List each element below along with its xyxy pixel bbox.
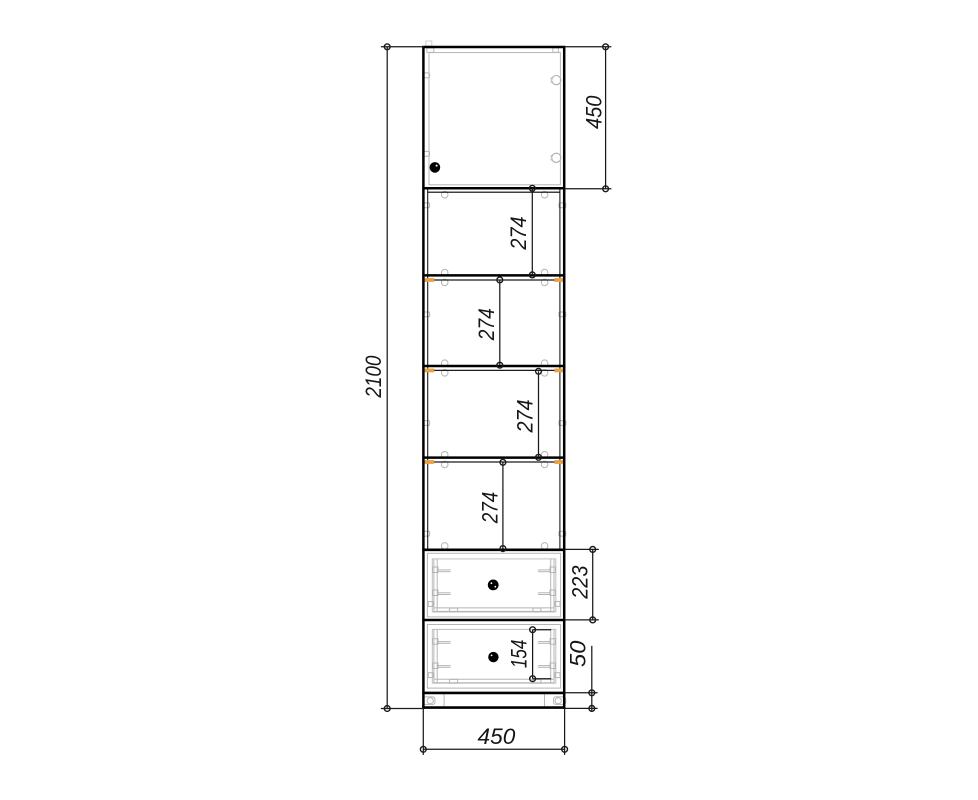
svg-text:450: 450: [582, 95, 607, 129]
svg-text:450: 450: [478, 724, 517, 749]
svg-text:154: 154: [506, 640, 531, 669]
svg-text:2100: 2100: [361, 355, 386, 399]
svg-text:223: 223: [568, 565, 593, 600]
svg-text:274: 274: [474, 308, 499, 341]
svg-text:50: 50: [566, 640, 591, 667]
svg-text:274: 274: [512, 400, 537, 434]
svg-text:274: 274: [506, 216, 531, 250]
svg-text:274: 274: [477, 492, 502, 524]
